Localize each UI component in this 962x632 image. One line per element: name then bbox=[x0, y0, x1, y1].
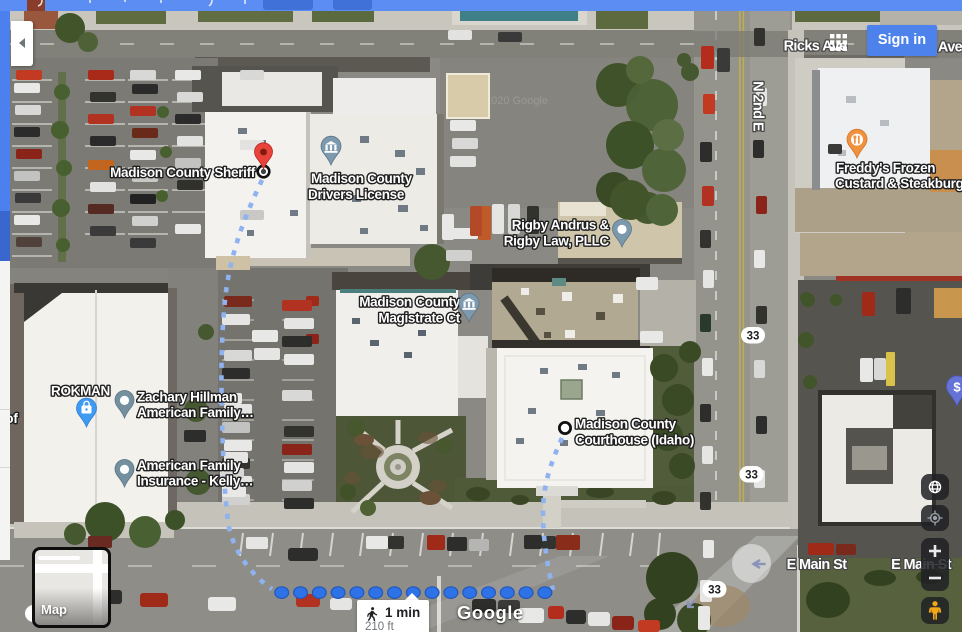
svg-text:ROKMAN: ROKMAN bbox=[51, 384, 110, 399]
svg-text:Rigby Andrus &: Rigby Andrus & bbox=[512, 218, 610, 233]
svg-text:Ave: Ave bbox=[938, 40, 962, 56]
svg-text:Magistrate Ct: Magistrate Ct bbox=[378, 311, 460, 326]
svg-text:American Family: American Family bbox=[137, 458, 241, 473]
svg-text:American Family…: American Family… bbox=[137, 405, 254, 420]
svg-text:Madison County: Madison County bbox=[575, 417, 677, 432]
svg-text:Courthouse (Idaho): Courthouse (Idaho) bbox=[575, 433, 694, 448]
svg-text:E Main St: E Main St bbox=[787, 557, 848, 573]
svg-text:Freddy's Frozen: Freddy's Frozen bbox=[836, 161, 935, 176]
svg-text:33: 33 bbox=[745, 470, 758, 482]
svg-text:33: 33 bbox=[708, 585, 721, 597]
svg-text:Insurance - Kelly…: Insurance - Kelly… bbox=[137, 474, 253, 489]
svg-text:Zachary Hillman: Zachary Hillman bbox=[137, 390, 237, 405]
svg-text:Madison County Sheriff: Madison County Sheriff bbox=[110, 165, 256, 180]
svg-text:Custard & Steakburg…: Custard & Steakburg… bbox=[835, 176, 962, 191]
svg-text:Rigby Law, PLLC: Rigby Law, PLLC bbox=[504, 234, 610, 249]
svg-text:Madison County: Madison County bbox=[311, 171, 413, 186]
svg-text:33: 33 bbox=[747, 331, 760, 343]
svg-text:$: $ bbox=[953, 380, 961, 395]
svg-text:2020 Google: 2020 Google bbox=[485, 95, 548, 107]
svg-text:Drivers License: Drivers License bbox=[308, 187, 405, 202]
svg-text:N 2nd E: N 2nd E bbox=[750, 81, 766, 132]
svg-text:Madison County: Madison County bbox=[359, 295, 461, 310]
